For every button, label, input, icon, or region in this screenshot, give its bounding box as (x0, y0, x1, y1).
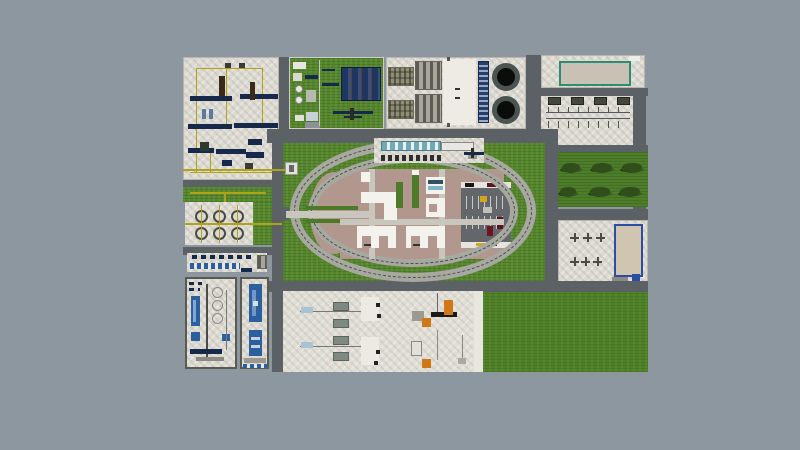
entrance-mark (364, 244, 371, 246)
feedwater-skid (388, 67, 414, 86)
building (361, 172, 370, 182)
antenna-mast (583, 233, 592, 242)
cooling-tower-bore (497, 68, 515, 86)
pipe-line (437, 330, 438, 360)
transformer-rack (478, 61, 489, 123)
busbar (240, 94, 278, 99)
pipe-rack-row (243, 364, 267, 368)
pipe-line (546, 118, 630, 119)
entrance-mark (413, 244, 420, 246)
campus-path (340, 219, 504, 225)
bus-canopy (381, 141, 441, 151)
marker (376, 350, 380, 354)
grove (558, 152, 648, 207)
switch-cabinet (246, 152, 264, 158)
roof-mark (455, 88, 460, 90)
breaker (202, 109, 206, 119)
tower (219, 76, 225, 96)
tank-highlight (193, 300, 196, 322)
pipe-line (226, 290, 227, 350)
marker (377, 314, 381, 318)
yard-path (319, 60, 320, 126)
equipment-pad (293, 73, 302, 81)
equipment-pad (293, 62, 306, 69)
hedge (306, 206, 358, 210)
pad-mark (629, 56, 640, 61)
antenna-mast (596, 233, 605, 242)
turbine-block (415, 94, 442, 123)
foundation-pad (333, 302, 349, 311)
breaker (209, 109, 213, 119)
pad-mark (289, 165, 294, 172)
tank (295, 85, 303, 93)
pipe-yellow (237, 205, 238, 243)
crate-orange (422, 318, 431, 327)
busbar (322, 83, 339, 86)
cooling-panel-array (341, 67, 381, 101)
antenna-mast (570, 233, 579, 242)
antenna-mast (570, 257, 579, 266)
courtyard (379, 236, 388, 248)
crate-orange (444, 300, 453, 315)
pylon (350, 108, 354, 120)
pipe-rack-row (189, 282, 202, 285)
pipe-rack-row (190, 263, 240, 269)
marker (376, 303, 380, 307)
clarifier (212, 287, 223, 298)
equipment-box (411, 341, 422, 356)
clarifier (212, 300, 223, 311)
pylon (471, 148, 474, 158)
busbar (305, 75, 318, 79)
site-plan-canvas (0, 0, 800, 450)
building (361, 192, 397, 203)
nozzle (301, 307, 313, 313)
tank-farm-lawn (183, 187, 272, 202)
courtyard (429, 204, 437, 212)
pipe-yellow (183, 169, 287, 171)
courtyard (411, 236, 420, 248)
roof-mark (447, 57, 450, 61)
equipment-bar (190, 349, 222, 354)
busbar (216, 149, 246, 154)
cooling-tower-bore (497, 101, 515, 119)
pipe-rack-row (189, 288, 200, 291)
pipe-rack-row (192, 255, 254, 259)
hedge (396, 182, 403, 208)
equipment-plinth (548, 97, 561, 105)
hall-roof (443, 59, 476, 125)
equipment-bar (196, 357, 224, 361)
meadow (483, 292, 648, 372)
bus-platform (381, 155, 441, 161)
road-pool-south (541, 88, 648, 96)
equipment-grid (257, 255, 267, 269)
tank-hatch (253, 301, 258, 306)
breaker (200, 142, 209, 151)
switch-cabinet (248, 139, 262, 145)
road-ring-east (545, 143, 558, 288)
foundation-pad (333, 319, 349, 328)
equipment-plinth (594, 97, 607, 105)
pipe-supports (548, 107, 628, 112)
tank-blue (191, 332, 200, 341)
road-switchyard-south (183, 180, 279, 187)
insulator (239, 63, 245, 68)
roof-mark (455, 97, 460, 99)
equipment-box (306, 90, 316, 102)
road-east-stub (545, 209, 648, 220)
pipe-yellow (219, 205, 220, 243)
pipe-yellow (190, 192, 266, 194)
road-ring-west (272, 129, 283, 372)
equipment-bar (244, 358, 266, 363)
road-turbine-east (526, 55, 541, 129)
antenna-mast (581, 257, 590, 266)
busbar (190, 96, 232, 101)
bus-wire (196, 68, 263, 69)
tank (295, 96, 303, 104)
clarifier (212, 313, 223, 324)
pylon (464, 152, 484, 155)
nozzle (301, 342, 313, 348)
building (412, 170, 419, 175)
antenna-mast (593, 257, 602, 266)
marker (374, 361, 378, 365)
courtyard (428, 236, 437, 248)
glass-roof (428, 180, 443, 184)
busbar (234, 123, 278, 128)
bus-wire (196, 68, 197, 172)
turbine-block (415, 61, 442, 90)
yard-strip (474, 291, 483, 372)
equipment-box (306, 112, 318, 121)
busbar (322, 69, 335, 71)
bus-wire (190, 172, 278, 173)
courtyard (362, 236, 371, 248)
tank-band (251, 337, 260, 340)
equipment-plinth (617, 97, 630, 105)
foundation-pad (333, 336, 349, 345)
tank-blue (249, 330, 262, 356)
equipment-pad (295, 115, 304, 121)
pipe-yellow (201, 205, 202, 243)
pipe-yellow (185, 223, 282, 225)
pipe-supports (548, 121, 628, 128)
bus-shelter (441, 142, 474, 151)
roof-mark (447, 123, 450, 127)
hedge (412, 175, 419, 208)
pipe-yellow (224, 192, 226, 202)
settling-basin (614, 224, 643, 277)
busbar (188, 124, 232, 129)
pipe-line (546, 112, 630, 113)
tank-band (251, 345, 260, 348)
road-substation-east (279, 57, 289, 130)
site-plan-viewport[interactable] (0, 0, 800, 450)
campus-path (286, 211, 370, 218)
insulator (225, 63, 231, 68)
equipment-box (458, 358, 466, 364)
crate-orange (422, 359, 431, 368)
glass-roof (428, 186, 443, 190)
cooling-basin (559, 61, 631, 86)
equipment-plinth (571, 97, 584, 105)
switch-cabinet (222, 160, 232, 166)
equipment-box (305, 122, 320, 128)
foundation-pad (333, 352, 349, 361)
pad-mark (632, 274, 640, 281)
tower (250, 82, 255, 100)
feedwater-skid (388, 100, 414, 119)
